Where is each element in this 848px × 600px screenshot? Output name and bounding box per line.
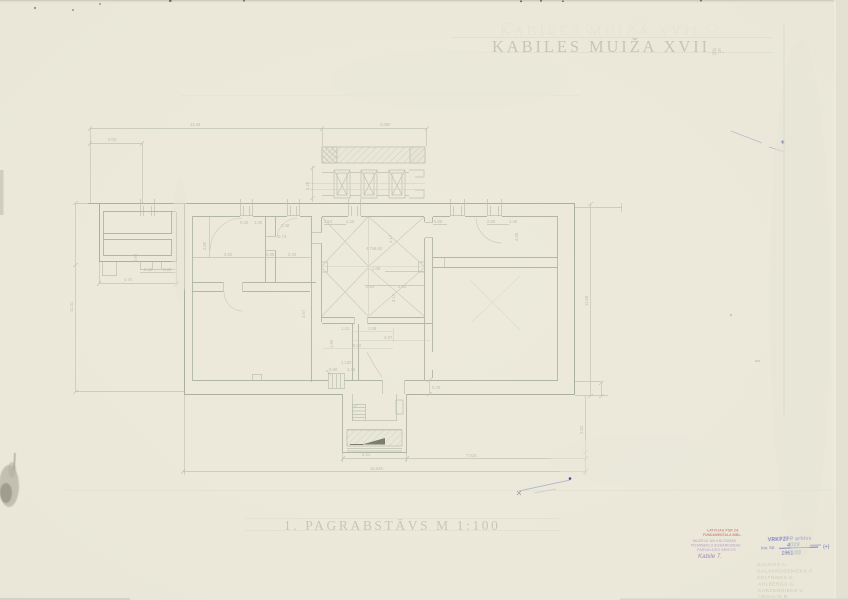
svg-text:Inv. Nr.: Inv. Nr. — [761, 545, 775, 550]
svg-text:CELTNIEKS E.: CELTNIEKS E. — [757, 575, 795, 581]
svg-text:4.060: 4.060 — [380, 122, 391, 127]
svg-text:4.74: 4.74 — [124, 277, 133, 282]
svg-text:0.42: 0.42 — [240, 220, 249, 225]
svg-text:1.90: 1.90 — [329, 339, 334, 348]
svg-text:SALNAIS A.: SALNAIS A. — [757, 562, 787, 568]
svg-text:0.93: 0.93 — [133, 253, 138, 262]
svg-text:1.48: 1.48 — [281, 223, 290, 228]
svg-text:4.17: 4.17 — [388, 234, 393, 243]
svg-text:1.06: 1.06 — [372, 266, 381, 271]
svg-text:1.40: 1.40 — [509, 219, 518, 224]
svg-text:4.07: 4.07 — [384, 335, 393, 340]
svg-text:3.12: 3.12 — [391, 293, 396, 302]
svg-text:gs.: gs. — [712, 46, 725, 56]
svg-text:11.58: 11.58 — [584, 295, 589, 306]
svg-text:2.80: 2.80 — [487, 219, 496, 224]
svg-text:7.015: 7.015 — [466, 453, 477, 458]
svg-text:2.82: 2.82 — [579, 425, 584, 434]
svg-text:FUNDAMENTALA BIBL.: FUNDAMENTALA BIBL. — [703, 533, 742, 537]
svg-text:0.80: 0.80 — [434, 219, 443, 224]
svg-text:PARVALDES ARHIVS: PARVALDES ARHIVS — [697, 548, 736, 552]
svg-text:KABILES MUIŽA XVII: KABILES MUIŽA XVII — [500, 23, 700, 38]
svg-text:1.43: 1.43 — [346, 219, 355, 224]
svg-text:KABILES MUIŽA XVII: KABILES MUIŽA XVII — [492, 37, 710, 56]
svg-text:Kabile 7.: Kabile 7. — [698, 553, 722, 560]
svg-text:3.40: 3.40 — [288, 252, 297, 257]
svg-text:PIEMINEKLU AIZSARDZIBAS: PIEMINEKLU AIZSARDZIBAS — [691, 544, 741, 548]
svg-text:0.70: 0.70 — [432, 385, 441, 390]
svg-text:3.57: 3.57 — [301, 309, 306, 318]
svg-text:MUZEJU UN KULTURAS: MUZEJU UN KULTURAS — [693, 539, 737, 543]
svg-text:3.41: 3.41 — [362, 452, 371, 457]
svg-text:2.80: 2.80 — [202, 241, 207, 250]
svg-text:0.42: 0.42 — [144, 267, 153, 272]
svg-text:11.31: 11.31 — [69, 301, 74, 312]
svg-text:1.41: 1.41 — [341, 326, 350, 331]
svg-text:0.96: 0.96 — [266, 252, 275, 257]
svg-text:1.08: 1.08 — [368, 326, 377, 331]
svg-text:2.03: 2.03 — [108, 137, 117, 142]
svg-text:16.045: 16.045 — [370, 466, 383, 471]
svg-text:13.44: 13.44 — [190, 122, 201, 127]
svg-text:AHLBERGS G.: AHLBERGS G. — [758, 582, 795, 588]
svg-text:2.54: 2.54 — [324, 219, 333, 224]
svg-text:0.64: 0.64 — [366, 284, 375, 289]
svg-text:1.05: 1.05 — [254, 220, 263, 225]
svg-text:4.00: 4.00 — [514, 232, 519, 241]
svg-text:KURZEMNIEKS V.: KURZEMNIEKS V. — [758, 588, 804, 594]
svg-text:0.90: 0.90 — [329, 367, 338, 372]
svg-text:1. PAGRABSTĀVS M 1:100: 1. PAGRABSTĀVS M 1:100 — [284, 518, 501, 533]
svg-text:2.45: 2.45 — [347, 367, 356, 372]
svg-text:2.45: 2.45 — [398, 284, 407, 289]
svg-text:1.100: 1.100 — [341, 360, 352, 365]
svg-text:0.30: 0.30 — [163, 267, 172, 272]
svg-text:(+): (+) — [823, 544, 830, 550]
svg-text:6.02: 6.02 — [353, 343, 362, 348]
svg-text:3.50: 3.50 — [224, 252, 233, 257]
svg-text:0.74: 0.74 — [278, 234, 287, 239]
svg-text:LATVIJAS PSR ZA: LATVIJAS PSR ZA — [707, 529, 739, 533]
svg-text:1.20: 1.20 — [305, 181, 310, 190]
svg-text:4.7x6.80: 4.7x6.80 — [366, 246, 383, 251]
svg-text:GALAKRODZNIEKS P.: GALAKRODZNIEKS P. — [757, 569, 814, 575]
